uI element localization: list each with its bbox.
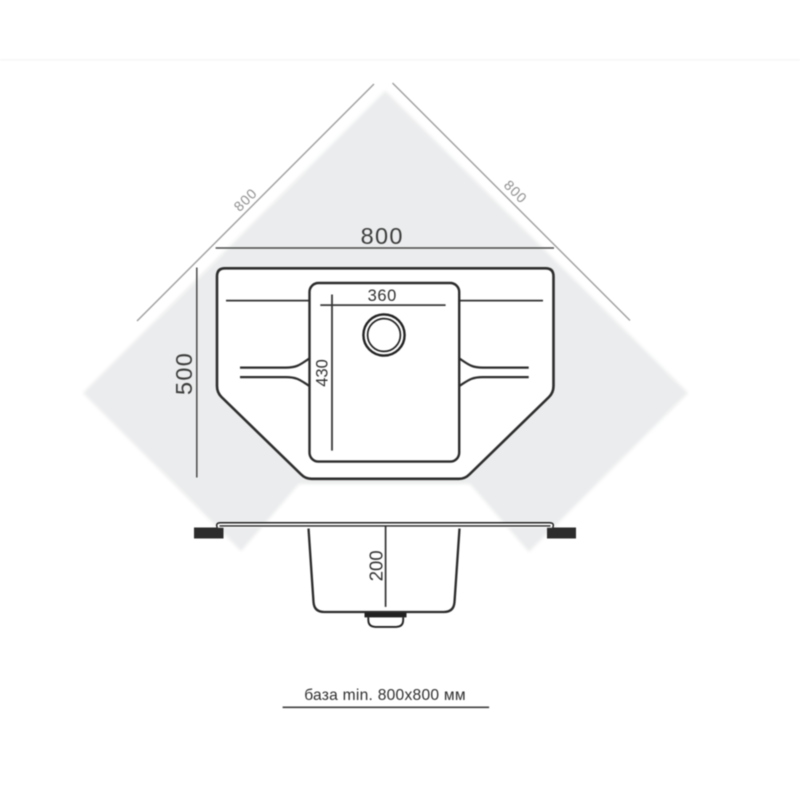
svg-text:430: 430 <box>313 359 331 387</box>
svg-text:500: 500 <box>171 352 197 395</box>
svg-text:база min. 800x800 мм: база min. 800x800 мм <box>304 687 466 704</box>
svg-text:800: 800 <box>361 223 404 249</box>
svg-text:200: 200 <box>365 550 386 581</box>
svg-text:360: 360 <box>368 287 397 305</box>
